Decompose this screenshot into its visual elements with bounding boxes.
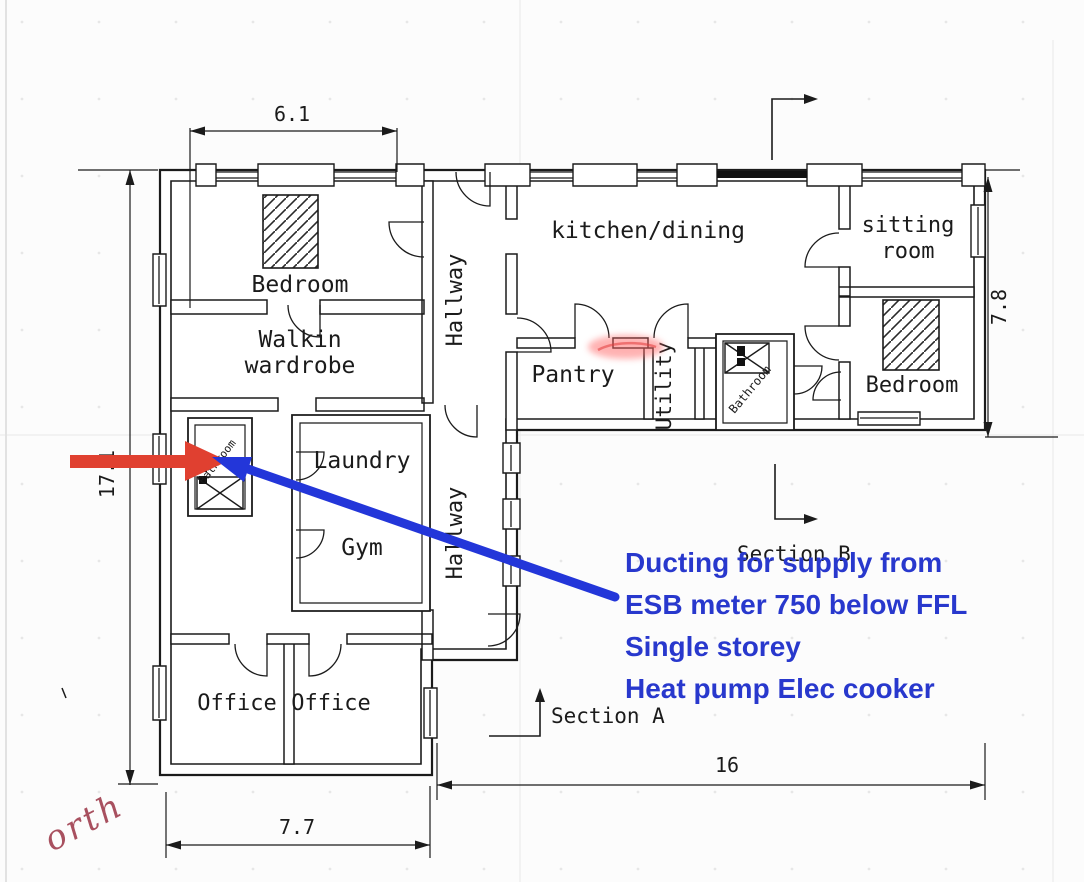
note-line-1: Ducting for supply from	[625, 547, 942, 578]
label-office-left: Office	[197, 691, 276, 716]
label-sitting-line1: sitting	[862, 213, 955, 238]
note-line-4: Heat pump Elec cooker	[625, 673, 935, 704]
dimension-bottom-left-value: 7.7	[279, 815, 315, 839]
note-line-3: Single storey	[625, 631, 801, 662]
label-laundry: Laundry	[314, 448, 411, 474]
label-walkin-line2: wardrobe	[245, 353, 356, 379]
label-pantry: Pantry	[531, 362, 614, 388]
chimney-hatch-left	[263, 195, 318, 268]
floor-plan-screenshot: Bedroom Walkin wardrobe Hallway kitchen/…	[0, 0, 1084, 882]
label-hallway-lower: Hallway	[443, 487, 468, 580]
label-kitchen-dining: kitchen/dining	[551, 218, 745, 244]
chimney-hatch-right	[883, 300, 939, 370]
dimension-right-value: 7.8	[987, 289, 1011, 325]
dimension-top-value: 6.1	[274, 102, 310, 126]
label-hallway-upper: Hallway	[443, 254, 468, 347]
section-a-label: Section A	[551, 704, 665, 728]
dimension-bottom-value: 16	[715, 753, 739, 777]
floor-plan-canvas: Bedroom Walkin wardrobe Hallway kitchen/…	[0, 0, 1084, 882]
red-arrow-shaft	[70, 455, 188, 468]
pink-highlight	[588, 335, 664, 359]
label-sitting-line2: room	[882, 239, 935, 264]
label-bedroom-right: Bedroom	[866, 373, 959, 398]
label-office-right: Office	[291, 691, 370, 716]
note-line-2: ESB meter 750 below FFL	[625, 589, 967, 620]
label-bedroom-left: Bedroom	[252, 272, 349, 298]
label-walkin-line1: Walkin	[258, 327, 341, 353]
label-utility: Utility	[652, 342, 676, 431]
label-gym: Gym	[341, 535, 383, 561]
solid-wall-segment	[717, 171, 807, 178]
